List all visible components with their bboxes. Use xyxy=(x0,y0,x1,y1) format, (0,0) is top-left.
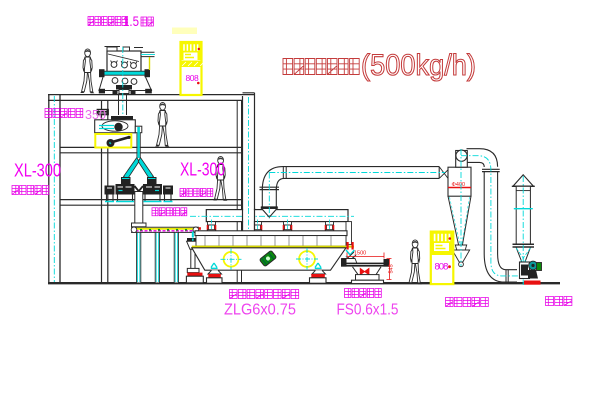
svg-text:808: 808 xyxy=(435,262,449,273)
svg-text:545: 545 xyxy=(389,264,395,273)
svg-text:FS0.6x1.5: FS0.6x1.5 xyxy=(337,302,399,319)
svg-text:ZLG6x0.75: ZLG6x0.75 xyxy=(224,302,296,319)
svg-text:XL-300: XL-300 xyxy=(14,161,61,181)
svg-text:808: 808 xyxy=(186,73,199,83)
svg-text:350: 350 xyxy=(85,107,106,122)
svg-text:1.5: 1.5 xyxy=(123,13,139,29)
svg-text:(500kg/h): (500kg/h) xyxy=(361,49,476,82)
svg-text:XL-300: XL-300 xyxy=(180,160,225,180)
svg-text:1500: 1500 xyxy=(354,251,366,257)
